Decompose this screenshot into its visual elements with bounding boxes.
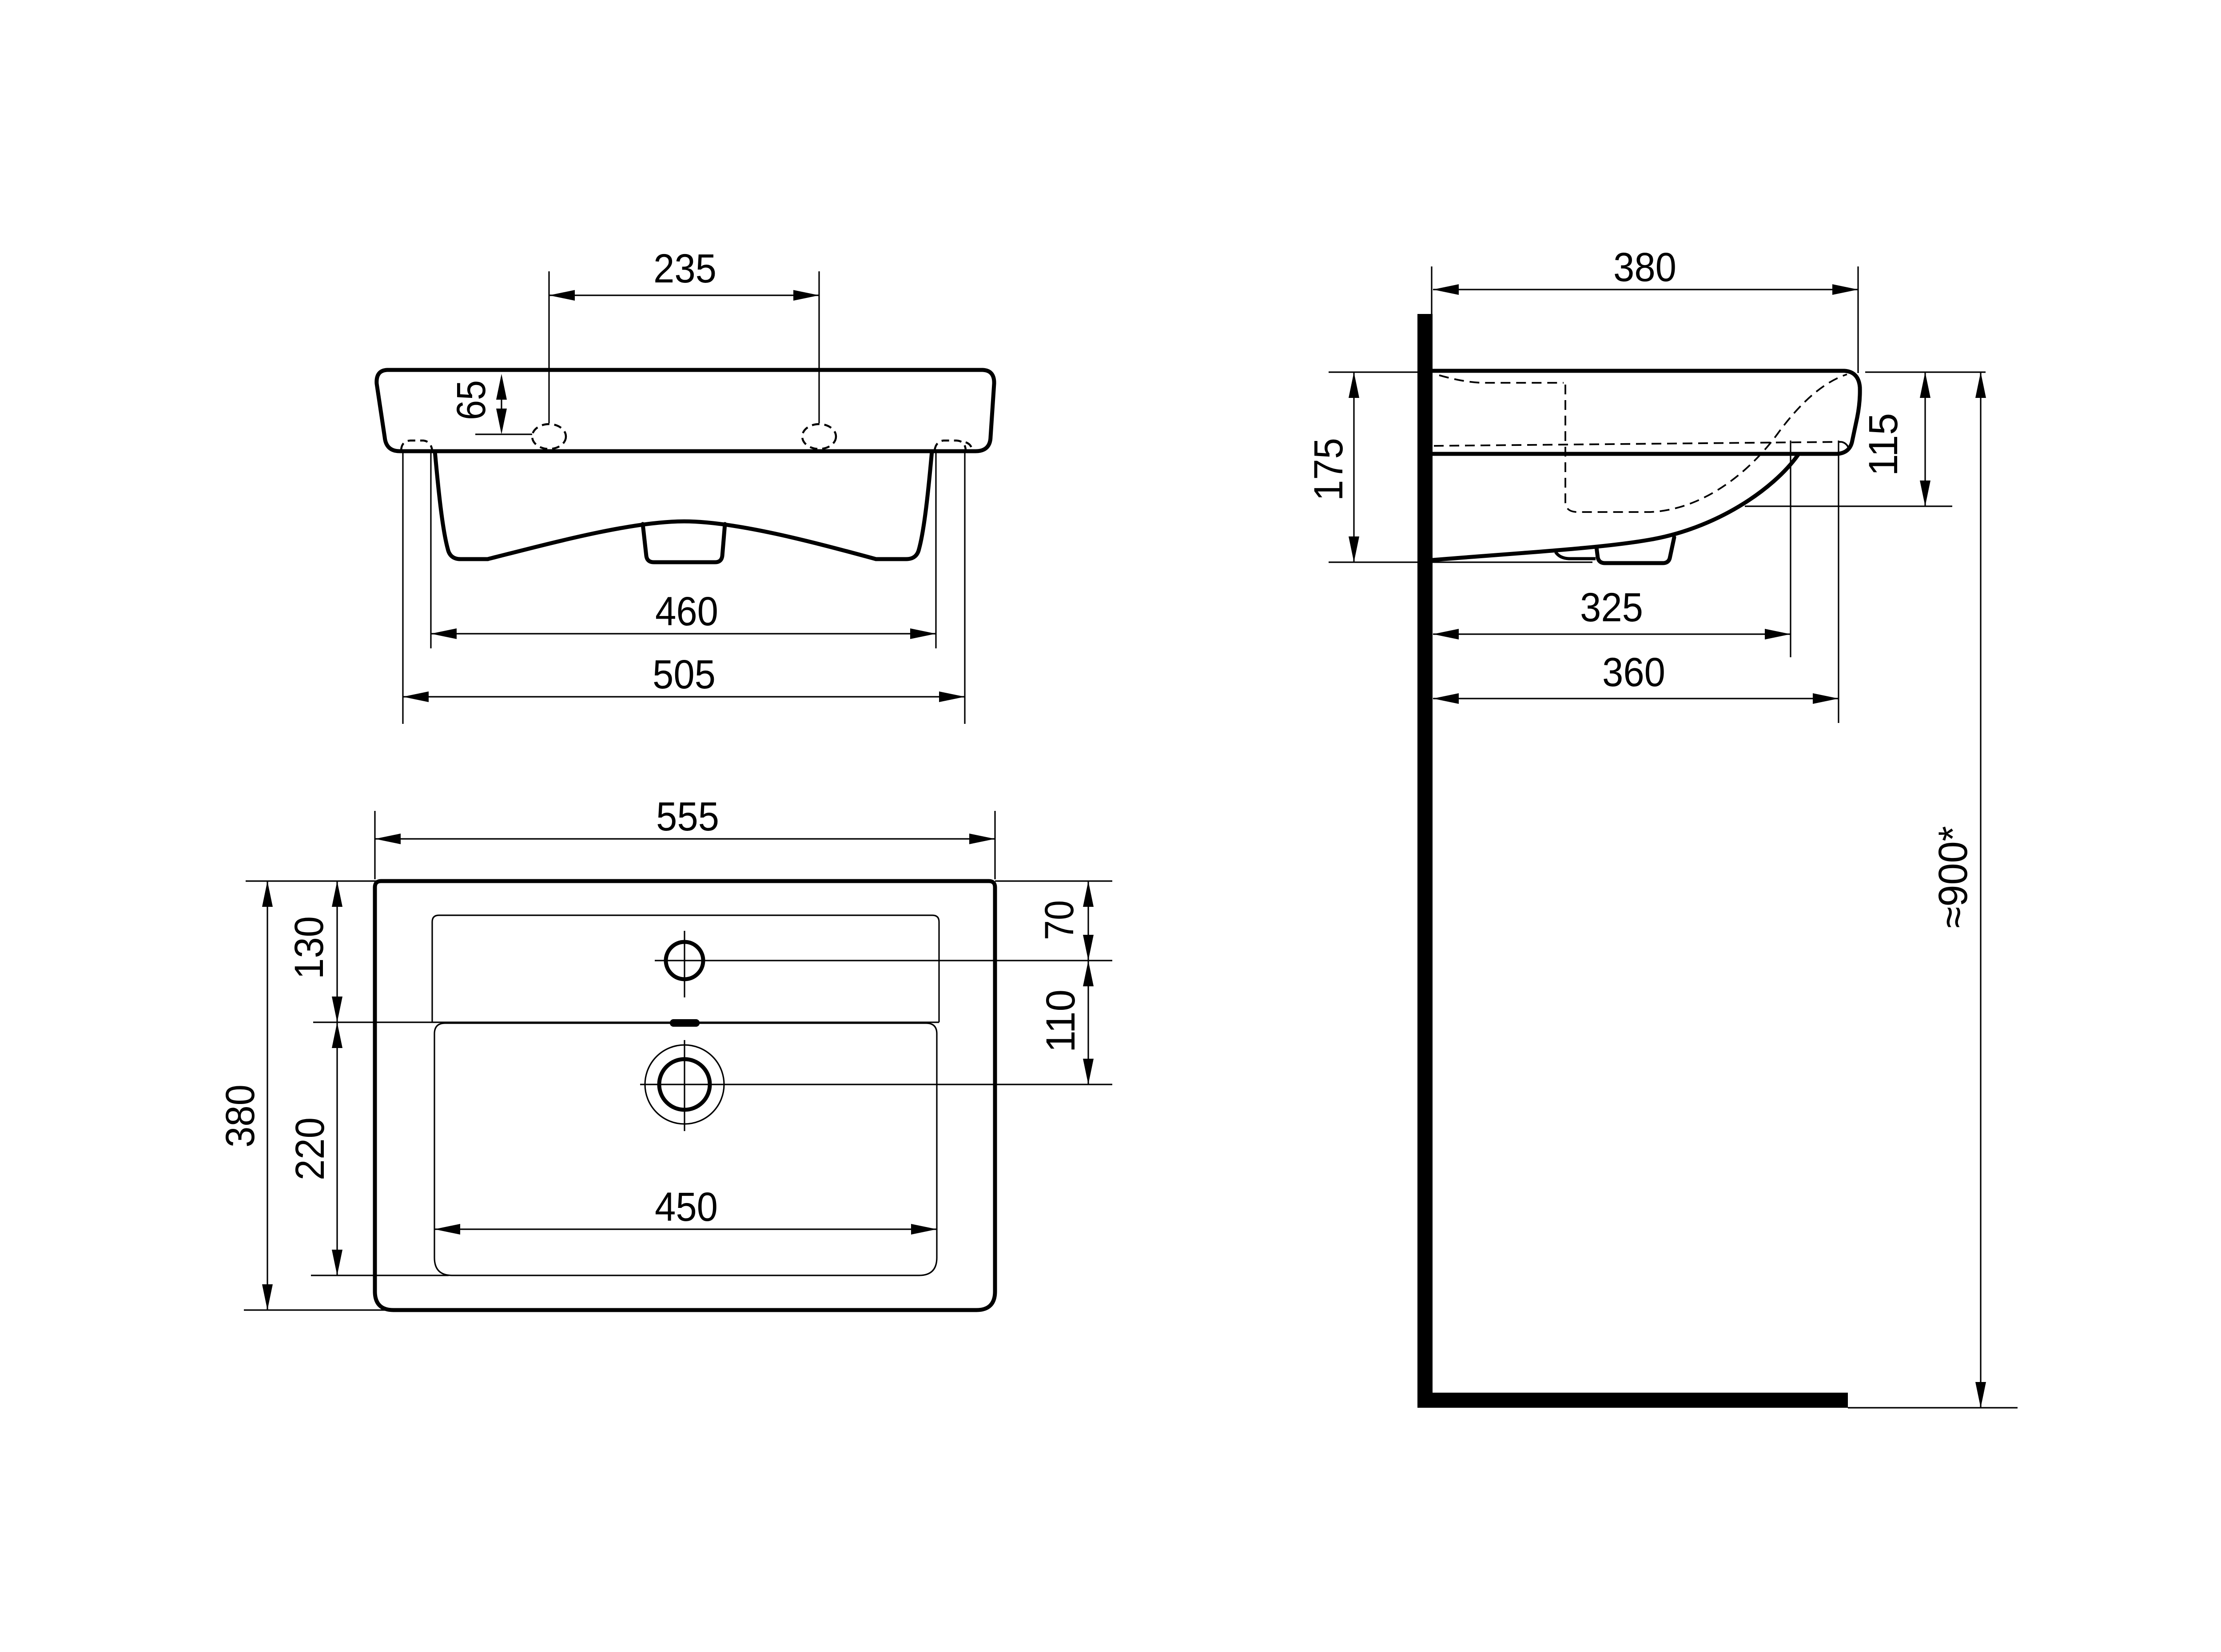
svg-text:70: 70: [1037, 900, 1082, 940]
svg-text:110: 110: [1038, 989, 1083, 1052]
svg-text:130: 130: [287, 916, 332, 979]
svg-text:380: 380: [1613, 245, 1676, 290]
svg-text:235: 235: [653, 246, 716, 291]
svg-text:175: 175: [1306, 438, 1351, 501]
svg-text:≈900*: ≈900*: [1930, 826, 1976, 928]
svg-text:220: 220: [287, 1117, 333, 1180]
svg-text:325: 325: [1580, 585, 1643, 630]
svg-text:360: 360: [1602, 650, 1665, 695]
svg-text:460: 460: [655, 589, 718, 634]
svg-text:65: 65: [449, 380, 494, 420]
svg-text:115: 115: [1861, 413, 1906, 476]
svg-text:505: 505: [653, 652, 716, 697]
svg-text:555: 555: [656, 794, 719, 839]
svg-text:450: 450: [655, 1184, 718, 1230]
svg-text:380: 380: [218, 1084, 263, 1148]
